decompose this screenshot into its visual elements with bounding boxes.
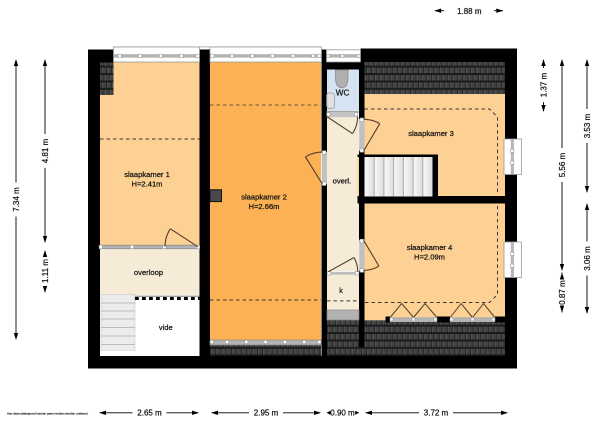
svg-text:slaapkamer 2: slaapkamer 2 bbox=[241, 193, 287, 202]
svg-text:slaapkamer 1: slaapkamer 1 bbox=[124, 170, 170, 179]
svg-text:2.95 m: 2.95 m bbox=[254, 409, 279, 418]
svg-text:3.72 m: 3.72 m bbox=[424, 409, 449, 418]
svg-text:4.81 m: 4.81 m bbox=[41, 138, 50, 163]
svg-text:Aan deze plattegrond kunnen ge: Aan deze plattegrond kunnen geen rechten… bbox=[7, 412, 89, 416]
svg-text:H=2.41m: H=2.41m bbox=[131, 180, 162, 189]
svg-text:5.56 m: 5.56 m bbox=[558, 152, 567, 177]
svg-text:WC: WC bbox=[336, 88, 350, 97]
svg-text:1.11 m: 1.11 m bbox=[41, 259, 50, 283]
svg-text:vide: vide bbox=[159, 323, 173, 332]
svg-text:3.53 m: 3.53 m bbox=[583, 113, 592, 138]
svg-text:0.90 m: 0.90 m bbox=[330, 409, 355, 418]
svg-text:2.65 m: 2.65 m bbox=[137, 409, 162, 418]
svg-text:3.06 m: 3.06 m bbox=[583, 246, 592, 271]
svg-text:overl.: overl. bbox=[333, 176, 352, 185]
svg-text:k: k bbox=[339, 288, 343, 295]
svg-text:slaapkamer 3: slaapkamer 3 bbox=[408, 129, 454, 138]
svg-text:0.87 m: 0.87 m bbox=[558, 280, 567, 305]
svg-text:1.37 m: 1.37 m bbox=[539, 72, 548, 97]
svg-text:H=2.09m: H=2.09m bbox=[414, 252, 445, 261]
svg-text:7.34 m: 7.34 m bbox=[12, 187, 21, 212]
svg-text:H=2.66m: H=2.66m bbox=[248, 202, 279, 211]
svg-text:1.88 m: 1.88 m bbox=[457, 7, 482, 16]
svg-text:slaapkamer 4: slaapkamer 4 bbox=[407, 243, 453, 252]
svg-text:overloop: overloop bbox=[134, 268, 163, 277]
